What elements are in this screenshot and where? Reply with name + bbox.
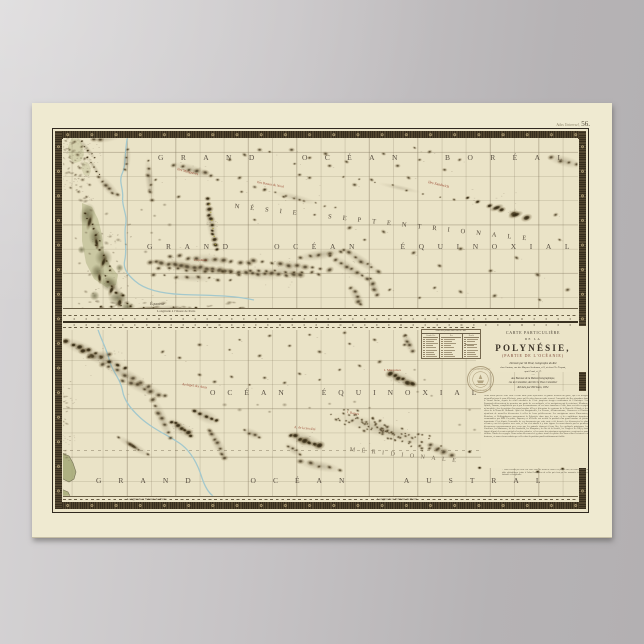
svg-text:CHARLES PICQUET: CHARLES PICQUET [471,368,491,371]
svg-text:GÉOGRAPHE: GÉOGRAPHE [474,389,488,392]
svg-text:I. Marquises: I. Marquises [384,368,402,372]
svg-text:Carolines: Carolines [194,258,208,262]
svg-text:Iles Sandwich: Iles Sandwich [428,180,450,189]
svg-text:Archipel des Amis: Archipel des Amis [182,382,208,390]
svg-text:A. de la Société: A. de la Société [294,425,316,431]
svg-text:Iles Basses du Nord: Iles Basses du Nord [257,180,285,189]
